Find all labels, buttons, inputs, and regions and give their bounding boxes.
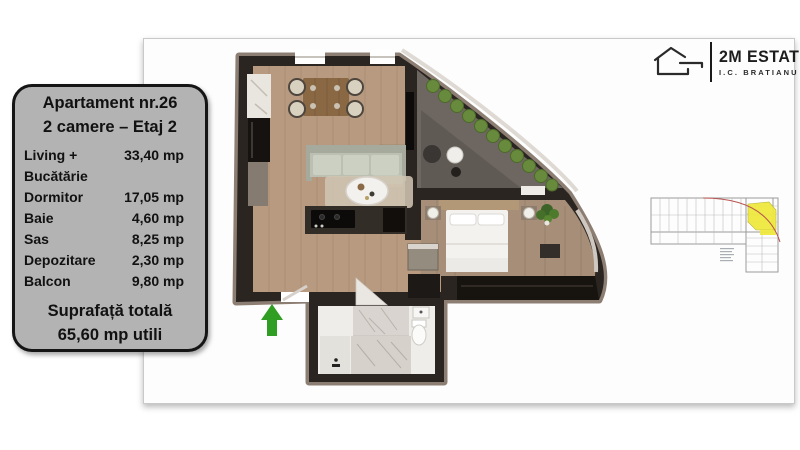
room-label: Balcon (15, 271, 71, 292)
room-area: 8,25 mp (132, 229, 205, 250)
room-row: Living +Bucătărie 33,40 mp (15, 145, 205, 187)
room-label: Depozitare (15, 250, 96, 271)
room-label: Baie (15, 208, 54, 229)
toilet (412, 325, 426, 345)
apartment-info-panel: Apartament nr.26 2 camere – Etaj 2 Livin… (12, 84, 208, 352)
room-row: Dormitor 17,05 mp (15, 187, 205, 208)
vanity (320, 336, 350, 374)
site-plan (648, 190, 790, 285)
house-icon (650, 42, 704, 82)
room-area: 9,80 mp (132, 271, 205, 292)
balcony-table-dark (423, 145, 441, 163)
room-row: Balcon 9,80 mp (15, 271, 205, 292)
room-area: 17,05 mp (124, 187, 205, 208)
room-row: Baie 4,60 mp (15, 208, 205, 229)
lamp-right (524, 208, 535, 219)
balcony-access-gap (521, 186, 545, 195)
logo-divider (710, 42, 712, 82)
room-area: 4,60 mp (132, 208, 205, 229)
room-label: Sas (15, 229, 49, 250)
total-value: 65,60 mp utili (15, 323, 205, 347)
entrance-arrow-icon (261, 304, 283, 336)
panel-title: Apartament nr.26 2 camere – Etaj 2 (15, 87, 205, 139)
bedroom-wardrobe (457, 276, 599, 300)
room-row: Depozitare 2,30 mp (15, 250, 205, 271)
bedroom-floor-box (540, 244, 560, 258)
brand-name: 2M ESTATE (719, 47, 800, 67)
lamp-left (428, 208, 439, 219)
kitchen-column (247, 74, 271, 206)
bed-blanket (446, 258, 508, 272)
bedroom-headboard (439, 200, 519, 210)
apartment-type: 2 camere – Etaj 2 (15, 115, 205, 139)
room-label-line2: Bucătărie (24, 166, 88, 187)
floor-plan-render (225, 48, 645, 400)
legend-lines (720, 248, 734, 261)
room-area: 2,30 mp (132, 250, 205, 271)
room-list: Living +Bucătărie 33,40 mp Dormitor 17,0… (15, 143, 205, 292)
panel-total: Suprafață totală 65,60 mp utili (15, 296, 205, 351)
room-area: 33,40 mp (124, 145, 205, 187)
bed-pillow-left (450, 214, 476, 225)
coffee-table (346, 177, 388, 205)
kitchen-counter (305, 206, 407, 234)
logo: 2M ESTATE I.C. BRATIANU (650, 42, 800, 82)
brand-location: I.C. BRATIANU (719, 68, 800, 77)
balcony-stool (451, 167, 461, 177)
bed-pillow-right (478, 214, 504, 225)
room-row: Sas 8,25 mp (15, 229, 205, 250)
dining-table (303, 78, 349, 116)
apartment-number: Apartament nr.26 (15, 91, 205, 115)
window-top-right (370, 50, 395, 64)
total-label: Suprafață totală (15, 299, 205, 323)
balcony-table-white (447, 147, 463, 163)
window-top-left (295, 50, 325, 64)
highlighted-unit (748, 202, 776, 235)
balcony-sliding-door (406, 92, 414, 150)
room-label: Living + (24, 147, 77, 163)
room-label: Dormitor (15, 187, 83, 208)
